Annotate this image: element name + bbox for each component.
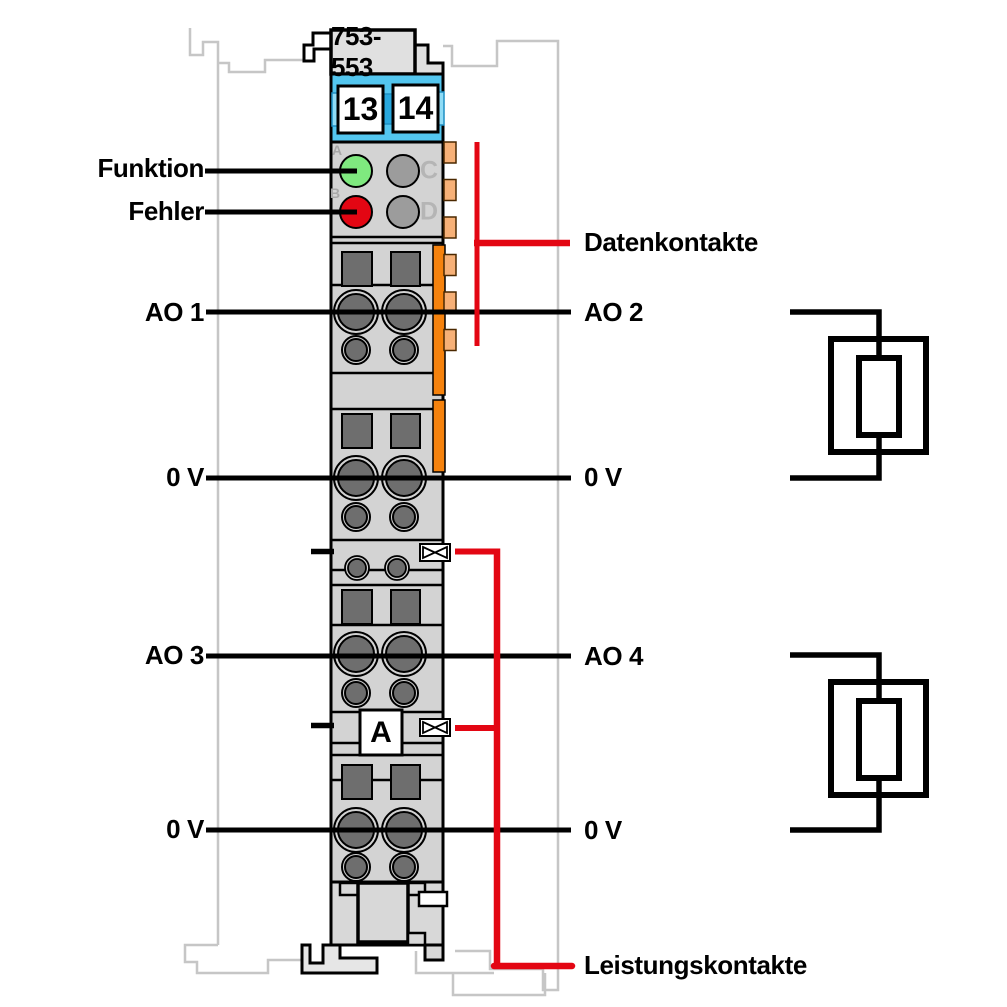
- part-number: 753-553: [331, 30, 415, 74]
- terminal-number-13: 13: [338, 86, 383, 133]
- module-top-left-ear: [304, 33, 331, 61]
- label-fehler: Fehler: [128, 196, 204, 227]
- label-ao4: AO 4: [584, 641, 643, 672]
- foot-right-notch: [419, 892, 447, 906]
- label-leistungskontakte: Leistungskontakte: [584, 950, 807, 981]
- neighbor-left-ledge-outline: [218, 60, 303, 72]
- load-symbol-upper: [790, 312, 926, 478]
- marker-letter: A: [360, 710, 402, 755]
- power-jumper-contact-lower: [420, 719, 450, 736]
- led-letter-b: B: [330, 185, 340, 201]
- load-symbol-lower: [790, 655, 926, 830]
- label-datenkontakte: Datenkontakte: [584, 227, 758, 258]
- label-ov-right-2: 0 V: [584, 815, 622, 846]
- latch-strips: [433, 245, 445, 472]
- label-ov-left-2: 0 V: [166, 814, 204, 845]
- label-ov-left-1: 0 V: [166, 462, 204, 493]
- led-letter-d: D: [420, 198, 438, 227]
- foot-release-latch: [302, 945, 377, 973]
- foot-center-tongue: [358, 883, 408, 942]
- annotation-lines-red: [455, 142, 572, 966]
- label-funktion: Funktion: [97, 153, 204, 184]
- foot-shoulder-left: [340, 883, 358, 895]
- foot-right-step: [408, 933, 425, 945]
- led-letter-c: C: [420, 157, 438, 186]
- led-d-gray: [387, 196, 419, 228]
- diagram-canvas: 753-553 13 14 A B C D A Funktion Fehler …: [0, 0, 1007, 1007]
- label-ao2: AO 2: [584, 297, 643, 328]
- neighbor-right-top-outline: [443, 41, 558, 945]
- label-ao1: AO 1: [145, 297, 204, 328]
- led-c-gray: [387, 155, 419, 187]
- label-ov-right-1: 0 V: [584, 462, 622, 493]
- foot-right-lower-piece: [425, 945, 443, 960]
- terminal-number-14: 14: [393, 85, 438, 132]
- power-jumper-contact-upper: [420, 544, 450, 561]
- neighbor-left-foot-outline: [185, 945, 302, 973]
- led-letter-a: A: [332, 142, 342, 158]
- neighbor-right-foot-outline-3: [453, 973, 545, 995]
- label-ao3: AO 3: [145, 640, 204, 671]
- module-connection-diagram: [0, 0, 1007, 1007]
- data-contact-tabs: [444, 142, 456, 351]
- module-top-right-tab: [415, 45, 443, 75]
